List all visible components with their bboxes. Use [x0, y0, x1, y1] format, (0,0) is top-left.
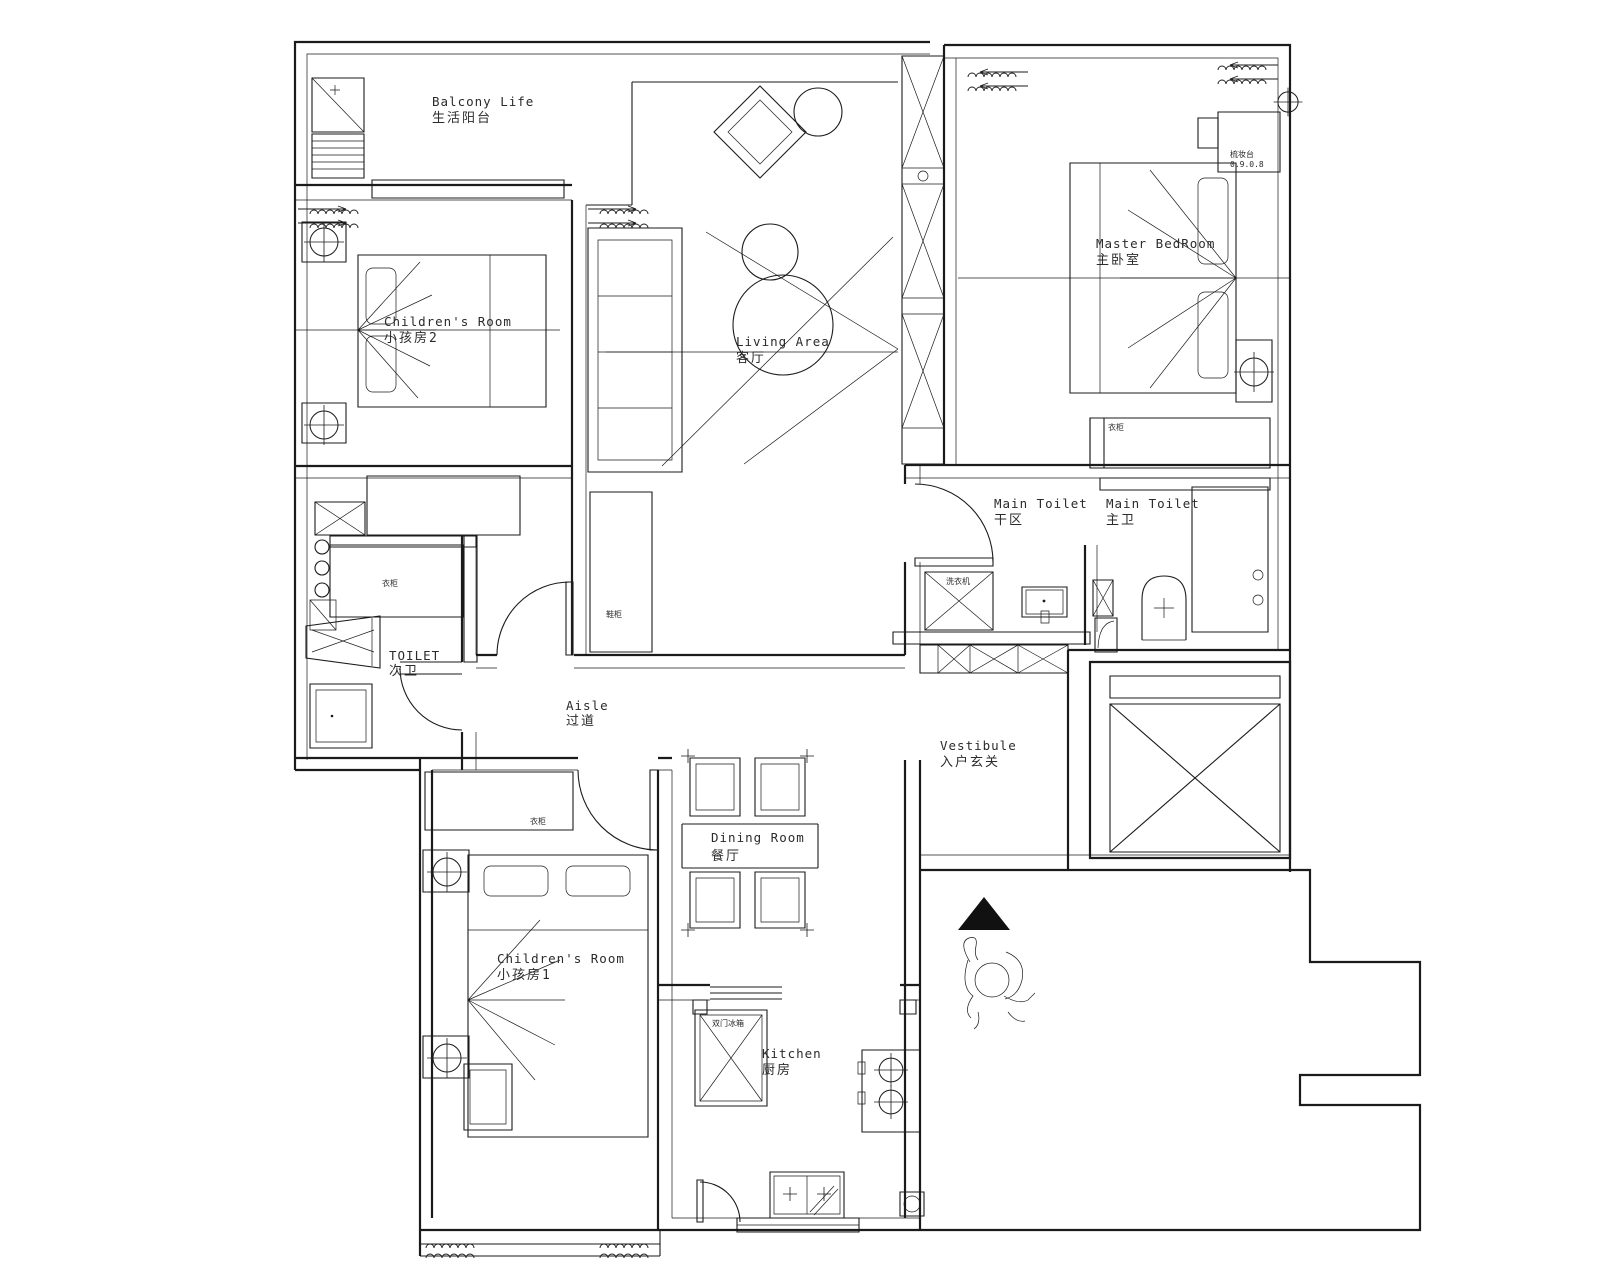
desk-table — [464, 1064, 512, 1130]
door-master-suite — [915, 484, 993, 566]
window-bay-right-icon — [600, 1244, 648, 1248]
main-toilet-fixtures — [925, 487, 1268, 640]
label-balcony-en: Balcony Life — [432, 94, 534, 109]
label-shoe-cabinet: 鞋柜 — [606, 609, 622, 619]
label-fridge: 双门冰箱 — [712, 1018, 744, 1028]
label-childrens2-zh: 小孩房2 — [384, 330, 439, 346]
doors — [400, 484, 1117, 1222]
window-living-icon — [588, 206, 648, 214]
shoe-cabinet — [590, 492, 652, 652]
dining-chair — [755, 872, 805, 928]
label-aisle-zh: 过道 — [566, 714, 596, 729]
window-bay-left-icon — [426, 1244, 474, 1248]
side-table — [794, 88, 842, 136]
room-labels: Balcony Life 生活阳台 Children's Room 小孩房2 L… — [384, 94, 1215, 1078]
wardrobe-childrens1 — [425, 772, 573, 830]
label-living-en: Living Area — [736, 334, 830, 349]
kitchen-sink — [770, 1172, 844, 1218]
wardrobe-upper — [367, 476, 520, 535]
tv-feature-wall — [902, 56, 944, 464]
light-symbol-icon — [1234, 352, 1274, 392]
label-wardrobe-master: 衣柜 — [1108, 422, 1124, 432]
label-wardrobe-childrens1: 衣柜 — [530, 816, 546, 826]
terrace — [958, 897, 1035, 1029]
window-master-left-icon — [968, 69, 1028, 77]
label-wardrobe-left: 衣柜 — [382, 578, 398, 588]
shower-screen — [1192, 487, 1268, 632]
dining-chair — [690, 872, 740, 928]
kitchen-fixtures — [695, 1010, 924, 1232]
sight-lines — [662, 232, 898, 466]
label-childrens1-en: Children's Room — [497, 951, 625, 966]
label-aisle-en: Aisle — [566, 698, 609, 713]
closet-zone — [306, 476, 520, 748]
figure-drawing — [964, 937, 1035, 1029]
balcony-counter — [372, 180, 564, 198]
label-toilet2-en: TOILET — [389, 648, 440, 663]
door-kitchen — [697, 1180, 740, 1222]
label-toilet-main-en: Main Toilet — [1106, 496, 1200, 511]
stove — [858, 1050, 920, 1132]
entry-arrow-icon — [958, 897, 1010, 930]
label-living-zh: 客厅 — [736, 350, 766, 366]
label-toilet-dry-en: Main Toilet — [994, 496, 1088, 511]
sofa — [588, 228, 682, 472]
label-vestibule-zh: 入户玄关 — [940, 754, 1000, 770]
label-toilet2-zh: 次卫 — [389, 663, 419, 679]
dining-chair — [690, 758, 740, 816]
window-master-right-icon — [1218, 62, 1278, 70]
toilet-window — [310, 684, 372, 748]
label-toilet-dry-zh: 干区 — [994, 513, 1024, 528]
label-toilet-main-zh: 主卫 — [1106, 513, 1136, 528]
round-stool — [742, 224, 798, 280]
lounge-chair — [714, 86, 806, 178]
door-living-aisle — [497, 582, 573, 655]
door-shower — [1095, 618, 1117, 652]
entry-cabinet — [920, 645, 1068, 673]
label-kitchen-en: Kitchen — [762, 1046, 822, 1061]
floor-plan-canvas: Balcony Life 生活阳台 Children's Room 小孩房2 L… — [0, 0, 1600, 1280]
label-childrens1-zh: 小孩房1 — [497, 967, 552, 983]
label-vestibule-en: Vestibule — [940, 738, 1017, 753]
toilet-fixture — [1142, 576, 1186, 640]
label-master-en: Master BedRoom — [1096, 236, 1215, 251]
label-childrens2-en: Children's Room — [384, 314, 512, 329]
bed-childrens1 — [468, 855, 648, 1137]
label-balcony-zh: 生活阳台 — [432, 111, 492, 126]
master-bedroom-furniture — [958, 88, 1302, 468]
label-dresser-dim: 0.9.0.8 — [1230, 160, 1264, 169]
label-kitchen-zh: 厨房 — [762, 1062, 792, 1078]
niche-cabinet — [1093, 580, 1113, 616]
elevator-shaft — [1090, 662, 1290, 858]
dining-chair — [755, 758, 805, 816]
sink-vanity — [1022, 587, 1067, 623]
light-symbol-icon — [304, 405, 344, 445]
label-dining-en: Dining Room — [711, 830, 805, 845]
label-master-zh: 主卧室 — [1096, 252, 1141, 268]
label-dining-zh: 餐厅 — [711, 848, 741, 864]
label-dresser: 梳妆台 — [1230, 149, 1254, 159]
bathtub — [306, 616, 380, 668]
door-childrens1 — [578, 770, 658, 850]
laundry-box — [315, 502, 365, 535]
label-washer: 洗衣机 — [946, 576, 970, 586]
